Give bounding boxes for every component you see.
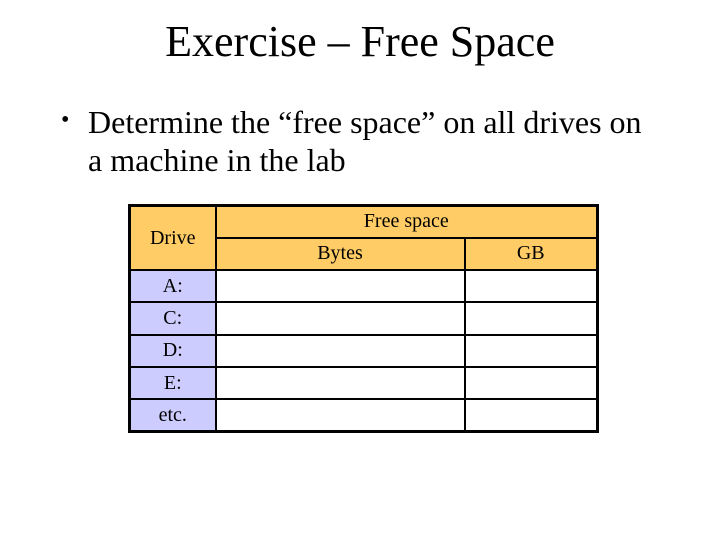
bytes-header-cell: Bytes [216,238,465,270]
table-row: E: [130,367,598,399]
drive-row-label: E: [130,367,216,399]
free-space-header-cell: Free space [216,206,598,238]
bytes-value-cell [216,367,465,399]
drive-row-label: etc. [130,399,216,431]
table-header-row-top: Drive Free space [130,206,598,238]
bullet-icon: • [61,108,69,132]
bullet-text: Determine the “free space” on all drives… [60,103,652,180]
gb-value-cell [465,399,598,431]
table-row: A: [130,270,598,302]
drive-row-label: C: [130,302,216,334]
drive-row-label: A: [130,270,216,302]
bytes-value-cell [216,335,465,367]
bytes-value-cell [216,399,465,431]
drive-row-label: D: [130,335,216,367]
table-row: D: [130,335,598,367]
gb-value-cell [465,270,598,302]
drive-header-cell: Drive [130,206,216,271]
slide-title: Exercise – Free Space [0,16,720,69]
bullet-item: • Determine the “free space” on all driv… [60,103,660,180]
gb-value-cell [465,367,598,399]
free-space-table: Drive Free space Bytes GB A: C: D: [128,204,599,433]
bytes-value-cell [216,302,465,334]
gb-value-cell [465,302,598,334]
table-row: etc. [130,399,598,431]
bytes-value-cell [216,270,465,302]
gb-value-cell [465,335,598,367]
table-row: C: [130,302,598,334]
slide: Exercise – Free Space • Determine the “f… [0,0,720,540]
gb-header-cell: GB [465,238,598,270]
